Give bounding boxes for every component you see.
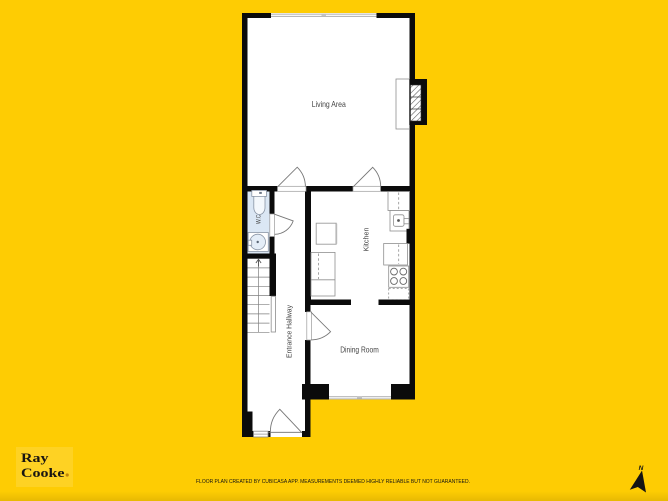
svg-text:Dining Room: Dining Room xyxy=(340,346,379,355)
svg-text:Ray: Ray xyxy=(21,451,49,465)
svg-text:Entrance Hallway: Entrance Hallway xyxy=(285,305,294,358)
svg-text:Cooke: Cooke xyxy=(21,466,65,480)
svg-text:N: N xyxy=(639,465,644,472)
svg-text:FLOOR PLAN CREATED BY CUBICASA: FLOOR PLAN CREATED BY CUBICASA APP. MEAS… xyxy=(196,479,470,485)
svg-text:Kitchen: Kitchen xyxy=(361,228,370,252)
svg-text:W.C: W.C xyxy=(256,214,263,224)
svg-text:Living Area: Living Area xyxy=(312,99,346,109)
